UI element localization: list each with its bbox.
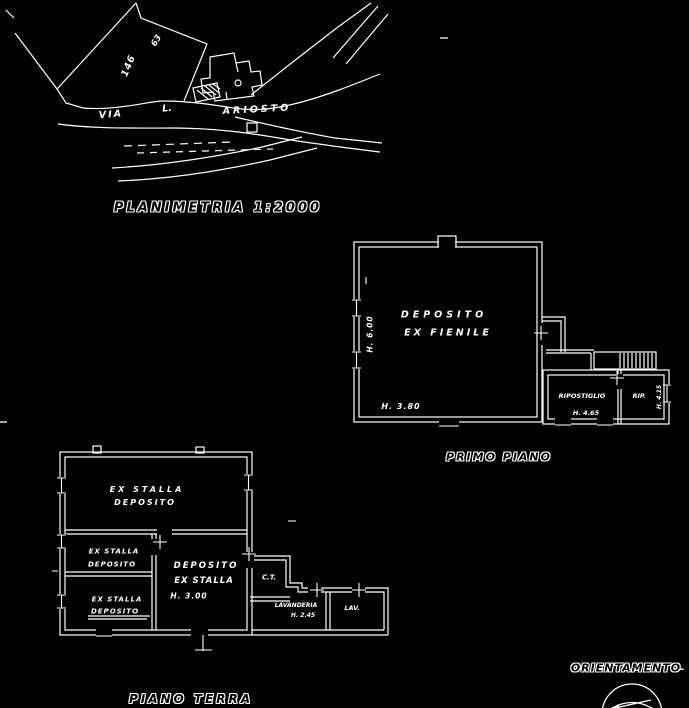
site-plan-caption: PLANIMETRIA 1:2000 [114, 202, 322, 215]
room-label-rip: RIP. [633, 393, 646, 400]
height-label-center-room: H. 3.00 [170, 592, 207, 600]
room-label-ct: C.T. [262, 575, 276, 582]
room-label-deposito: DEPOSITO [401, 310, 487, 320]
height-label-ripostiglio: H. 4.65 [573, 410, 599, 417]
room-label-top-ex-stalla: EX STALLA [110, 486, 185, 494]
street-label-via: VIA [99, 109, 124, 120]
room-label-lav: LAV. [344, 605, 359, 612]
compass-icon [602, 684, 662, 708]
room-label-top-deposito: DEPOSITO [114, 499, 176, 507]
cadastral-drawing-sheet: PLANIMETRIA 1:2000 VIA L. ARIOSTO 146 63… [0, 0, 689, 708]
room-label-midleft-ex-stalla: EX STALLA [89, 549, 140, 556]
height-label-lavanderia: H. 2.45 [291, 613, 315, 619]
first-floor-caption: PRIMO PIANO [446, 452, 552, 463]
room-label-lavanderia: LAVANDERIA [275, 603, 318, 609]
room-label-midleft-deposito: DEPOSITO [88, 562, 136, 569]
first-floor-openings [351, 241, 674, 427]
first-floor-walls [354, 236, 669, 424]
room-label-bottomleft-ex-stalla: EX STALLA [92, 597, 143, 604]
orientation-caption: ORIENTAMENTO [571, 663, 681, 674]
height-label-room: H. 3.80 [381, 403, 420, 411]
orientation-dash: - [680, 664, 685, 675]
room-label-bottomleft-deposito: DEPOSITO [91, 609, 139, 616]
height-label-rip: H. 4.15 [657, 385, 663, 409]
street-label-l: L. [162, 104, 172, 114]
room-label-ex-fienile: EX FIENILE [404, 328, 492, 338]
room-label-ripostiglio: RIPOSTIGLIO [559, 393, 606, 400]
room-label-center-ex-stalla: EX STALLA [174, 577, 234, 586]
room-label-center-deposito: DEPOSITO [174, 562, 239, 571]
height-label-wall: H. 6.00 [366, 315, 374, 352]
ground-floor-caption: PIANO TERRA [129, 693, 253, 705]
